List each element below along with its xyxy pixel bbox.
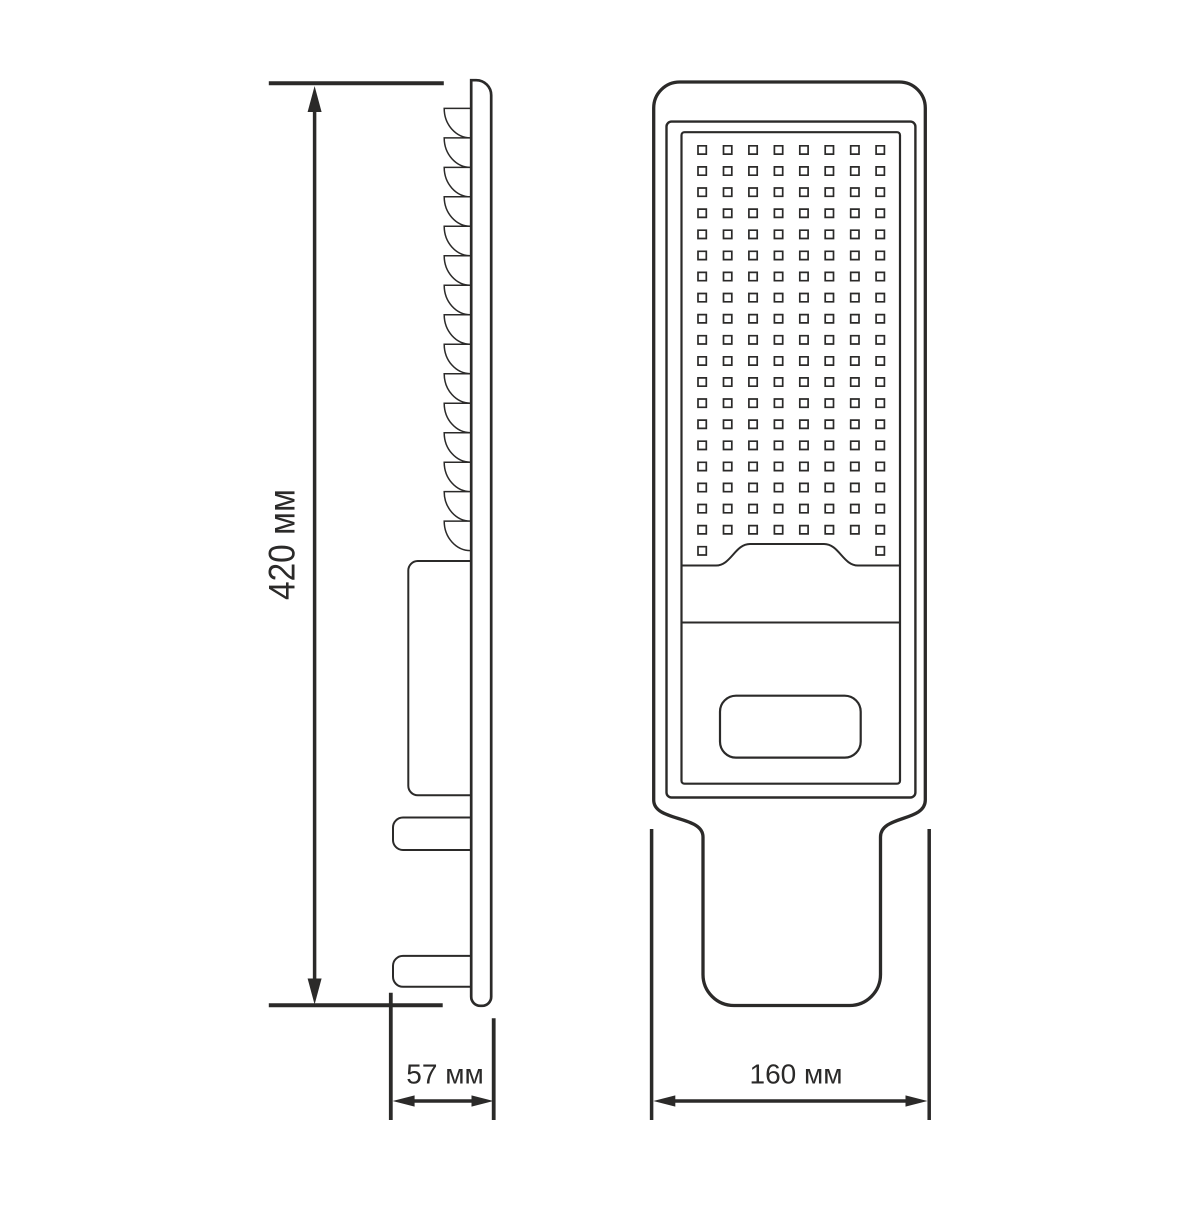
svg-text:57 мм: 57 мм	[406, 1059, 483, 1090]
svg-text:160 мм: 160 мм	[750, 1059, 843, 1090]
svg-text:420 мм: 420 мм	[262, 489, 303, 600]
